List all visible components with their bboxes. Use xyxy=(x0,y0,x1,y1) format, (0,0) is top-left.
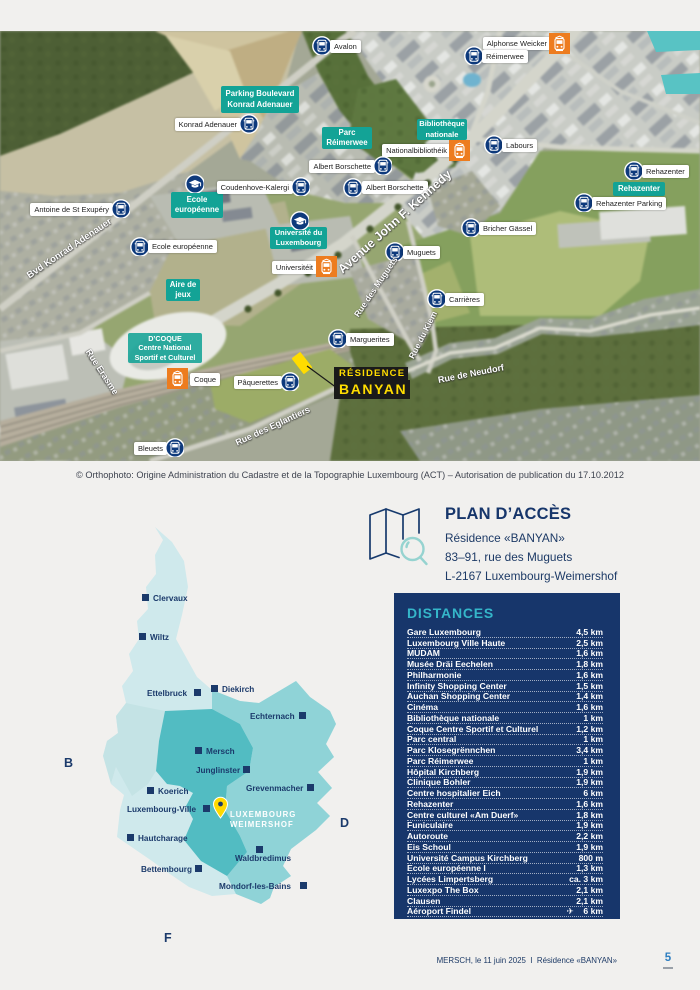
svg-text:Bettembourg: Bettembourg xyxy=(141,865,192,874)
svg-text:Mondorf-les-Bains: Mondorf-les-Bains xyxy=(219,882,291,891)
svg-text:Wiltz: Wiltz xyxy=(150,633,169,642)
svg-text:D: D xyxy=(340,816,349,830)
svg-text:Clervaux: Clervaux xyxy=(153,594,188,603)
svg-text:Diekirch: Diekirch xyxy=(222,685,254,694)
svg-text:Ettelbruck: Ettelbruck xyxy=(147,689,187,698)
svg-text:Mersch: Mersch xyxy=(206,747,235,756)
svg-text:WEIMERSHOF: WEIMERSHOF xyxy=(230,820,294,829)
svg-text:Hautcharage: Hautcharage xyxy=(138,834,188,843)
svg-text:B: B xyxy=(64,756,73,770)
svg-text:Echternach: Echternach xyxy=(250,712,295,721)
svg-text:F: F xyxy=(164,931,172,945)
svg-text:Waldbredimus: Waldbredimus xyxy=(235,854,292,863)
svg-text:Junglinster: Junglinster xyxy=(196,766,241,775)
svg-text:Luxembourg-Ville: Luxembourg-Ville xyxy=(127,805,196,814)
svg-text:Koerich: Koerich xyxy=(158,787,188,796)
svg-text:Grevenmacher: Grevenmacher xyxy=(246,784,304,793)
svg-text:LUXEMBOURG: LUXEMBOURG xyxy=(230,810,296,819)
